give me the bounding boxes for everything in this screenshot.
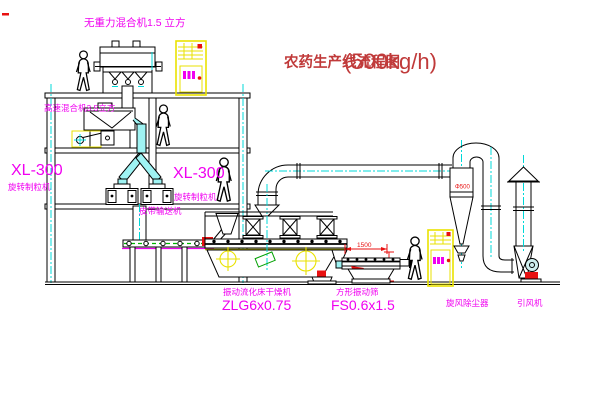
sieve-length-dim: 1500 [357, 242, 372, 249]
duct-inlet-funnel [255, 205, 279, 216]
person-figure [156, 105, 170, 145]
belt-conveyor-label: 皮带输送机 [139, 206, 182, 216]
cyclone-machine: Φ500 [450, 140, 514, 274]
title-capacity-text: (500kg/h) [344, 49, 437, 74]
granulator-left-machine [106, 184, 138, 205]
mixer-discharge-funnels [109, 72, 147, 87]
roof-slab [45, 93, 250, 98]
exhaust-duct [255, 163, 452, 216]
person-figure [76, 51, 90, 91]
sieve-model-label: FS0.6x1.5 [331, 297, 395, 313]
granulator-left-model-label: XL-300 [11, 162, 63, 179]
pesticide-line-drawing: 1500 341 [0, 0, 600, 403]
granulator-right-name-label: 旋转制粒机 [174, 192, 217, 202]
fan-label: 引风机 [517, 298, 543, 308]
control-cabinet-top [176, 41, 206, 95]
diagram-title: 农药生产线流程图 (500kg/h) [283, 49, 437, 74]
cyclone-diameter-text: Φ500 [455, 185, 470, 191]
indicator-light [447, 232, 451, 236]
fan-motor [526, 259, 539, 272]
dryer-name-label: 振动流化床干燥机 [223, 287, 292, 297]
granulator-left-name-label: 旋转制粒机 [8, 182, 51, 192]
gravity-mixer-machine [94, 41, 162, 93]
granulator-right-machine [141, 184, 173, 205]
person-figure [407, 237, 422, 279]
vibrating-sieve-machine: 1500 341 [342, 242, 413, 283]
dryer-feed-hopper [216, 214, 238, 235]
ground-line [45, 282, 560, 285]
control-cabinet-right [428, 230, 453, 286]
sieve-name-label: 方形振动筛 [336, 287, 379, 297]
gravity-mixer-label: 无重力混合机1.5 立方 [84, 16, 186, 29]
cabinet-knobs [183, 71, 195, 79]
flow-diagram-canvas: 1500 341 [0, 0, 600, 403]
dryer-model-label: ZLG6x0.75 [222, 297, 291, 313]
granulator-right-model-label: XL-300 [173, 165, 225, 182]
dimension-1500: 1500 [345, 242, 387, 254]
mid-floor-slab [45, 148, 250, 153]
high-speed-mixer-label: 高速混合机3.5立方 [44, 103, 115, 113]
cabinet-knobs [433, 257, 444, 264]
sieve-base [348, 269, 394, 279]
exhaust-stack [507, 155, 540, 252]
vibration-motor [317, 271, 326, 277]
red-margin-tick [2, 13, 9, 16]
spring-mounts [243, 217, 337, 239]
indicator-light [198, 76, 202, 80]
cyclone-label: 旋风除尘器 [446, 298, 489, 308]
indicator-light [447, 259, 450, 262]
indicator-light [198, 44, 203, 49]
sieve-deck [342, 258, 400, 269]
rain-cap [509, 167, 538, 181]
